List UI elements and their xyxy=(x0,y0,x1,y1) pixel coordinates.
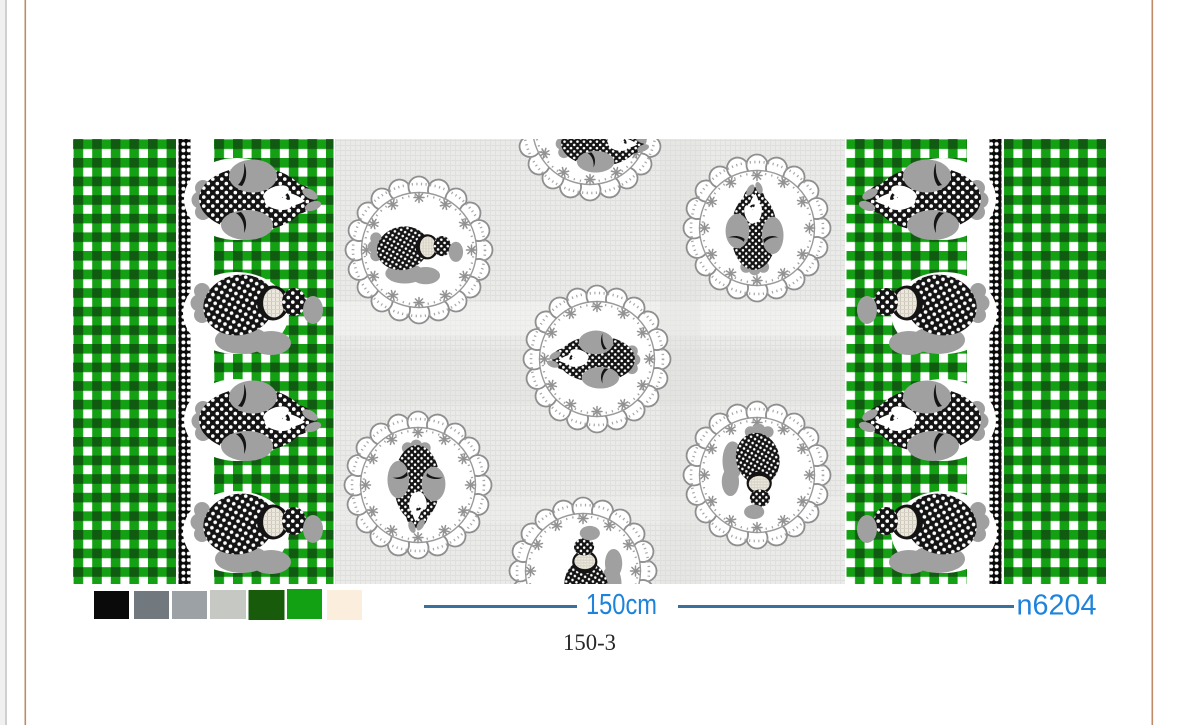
svg-text:150-3: 150-3 xyxy=(563,630,616,655)
svg-text:150cm: 150cm xyxy=(586,589,657,621)
svg-text:n6204: n6204 xyxy=(1017,590,1097,622)
